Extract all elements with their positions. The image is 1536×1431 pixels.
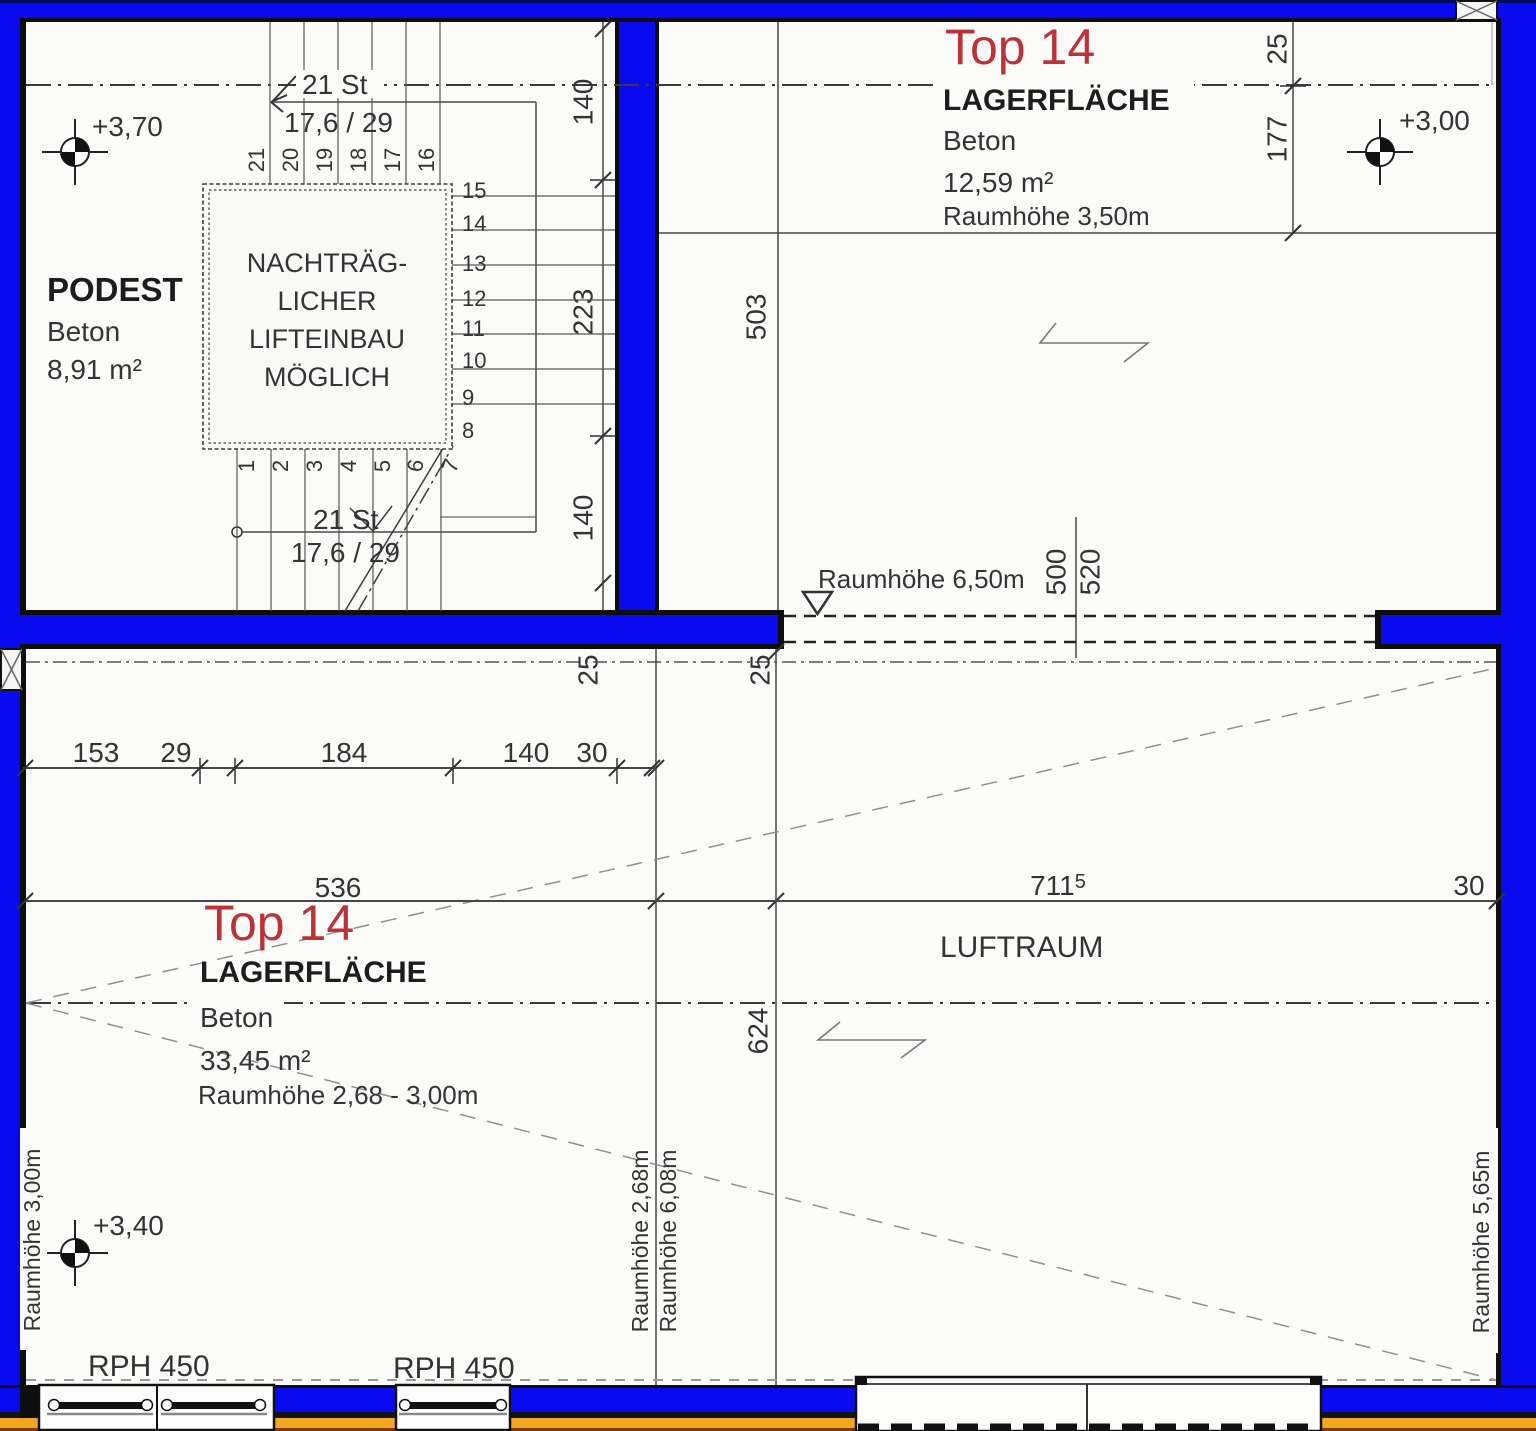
svg-text:9: 9 <box>462 385 474 410</box>
svg-text:17: 17 <box>380 148 405 172</box>
svg-text:NACHTRÄG-: NACHTRÄG- <box>247 248 408 278</box>
svg-text:Raumhöhe 3,50m: Raumhöhe 3,50m <box>943 201 1150 231</box>
svg-text:33,45 m²: 33,45 m² <box>200 1045 311 1076</box>
svg-text:Raumhöhe 6,08m: Raumhöhe 6,08m <box>655 1150 681 1333</box>
svg-text:20: 20 <box>278 148 303 172</box>
svg-text:30: 30 <box>1453 870 1484 901</box>
svg-text:12: 12 <box>462 286 486 311</box>
svg-text:LAGERFLÄCHE: LAGERFLÄCHE <box>943 84 1170 117</box>
svg-text:2: 2 <box>268 460 293 472</box>
svg-text:18: 18 <box>346 148 371 172</box>
svg-text:19: 19 <box>312 148 337 172</box>
svg-text:140: 140 <box>567 79 598 126</box>
svg-text:Raumhöhe 2,68m: Raumhöhe 2,68m <box>627 1150 653 1333</box>
svg-text:10: 10 <box>462 348 486 373</box>
svg-text:MÖGLICH: MÖGLICH <box>264 362 390 392</box>
svg-text:LIFTEINBAU: LIFTEINBAU <box>249 324 405 354</box>
svg-text:17,6 / 29: 17,6 / 29 <box>284 107 393 138</box>
svg-text:184: 184 <box>321 737 368 768</box>
svg-text:25: 25 <box>572 654 603 685</box>
svg-text:17,6 / 29: 17,6 / 29 <box>291 537 400 568</box>
svg-text:140: 140 <box>503 737 550 768</box>
svg-text:177: 177 <box>1261 116 1292 163</box>
svg-text:+3,00: +3,00 <box>1399 105 1470 136</box>
svg-text:500: 500 <box>1040 549 1071 596</box>
svg-text:Raumhöhe 2,68 - 3,00m: Raumhöhe 2,68 - 3,00m <box>198 1080 478 1110</box>
svg-text:21 St: 21 St <box>302 69 368 100</box>
svg-text:RPH 450: RPH 450 <box>88 1350 210 1383</box>
svg-text:4: 4 <box>336 460 361 472</box>
svg-text:21: 21 <box>244 148 269 172</box>
svg-text:Raumhöhe 5,65m: Raumhöhe 5,65m <box>1468 1151 1494 1334</box>
svg-text:Beton: Beton <box>200 1002 273 1033</box>
svg-text:140: 140 <box>567 495 598 542</box>
svg-text:3: 3 <box>302 460 327 472</box>
svg-text:8: 8 <box>462 418 474 443</box>
svg-text:223: 223 <box>567 289 598 336</box>
svg-text:+3,70: +3,70 <box>92 111 163 142</box>
svg-text:1: 1 <box>234 460 259 472</box>
svg-text:Top 14: Top 14 <box>204 895 354 951</box>
svg-text:21 St: 21 St <box>313 504 379 535</box>
svg-text:Beton: Beton <box>943 125 1016 156</box>
svg-text:624: 624 <box>742 1008 773 1055</box>
svg-text:153: 153 <box>73 737 120 768</box>
svg-text:15: 15 <box>462 178 486 203</box>
svg-text:Raumhöhe 3,00m: Raumhöhe 3,00m <box>19 1149 45 1332</box>
svg-text:30: 30 <box>576 737 607 768</box>
svg-text:11: 11 <box>462 316 485 341</box>
svg-text:520: 520 <box>1074 549 1105 596</box>
svg-text:5: 5 <box>370 460 395 472</box>
svg-text:25: 25 <box>744 654 775 685</box>
svg-text:16: 16 <box>414 148 439 172</box>
svg-text:8,91 m²: 8,91 m² <box>47 354 142 385</box>
svg-text:LICHER: LICHER <box>277 286 376 316</box>
svg-text:LUFTRAUM: LUFTRAUM <box>940 931 1103 964</box>
svg-text:29: 29 <box>160 737 191 768</box>
svg-text:503: 503 <box>740 294 771 341</box>
svg-text:Raumhöhe 6,50m: Raumhöhe 6,50m <box>818 564 1025 594</box>
svg-text:Beton: Beton <box>47 316 120 347</box>
svg-text:+3,40: +3,40 <box>93 1210 164 1241</box>
svg-text:13: 13 <box>462 251 486 276</box>
svg-text:PODEST: PODEST <box>47 271 183 308</box>
svg-text:LAGERFLÄCHE: LAGERFLÄCHE <box>200 956 427 989</box>
svg-text:14: 14 <box>462 211 486 236</box>
svg-text:RPH 450: RPH 450 <box>393 1352 515 1385</box>
svg-text:25: 25 <box>1261 33 1292 64</box>
svg-text:12,59 m²: 12,59 m² <box>943 167 1054 198</box>
svg-text:Top 14: Top 14 <box>945 19 1095 75</box>
